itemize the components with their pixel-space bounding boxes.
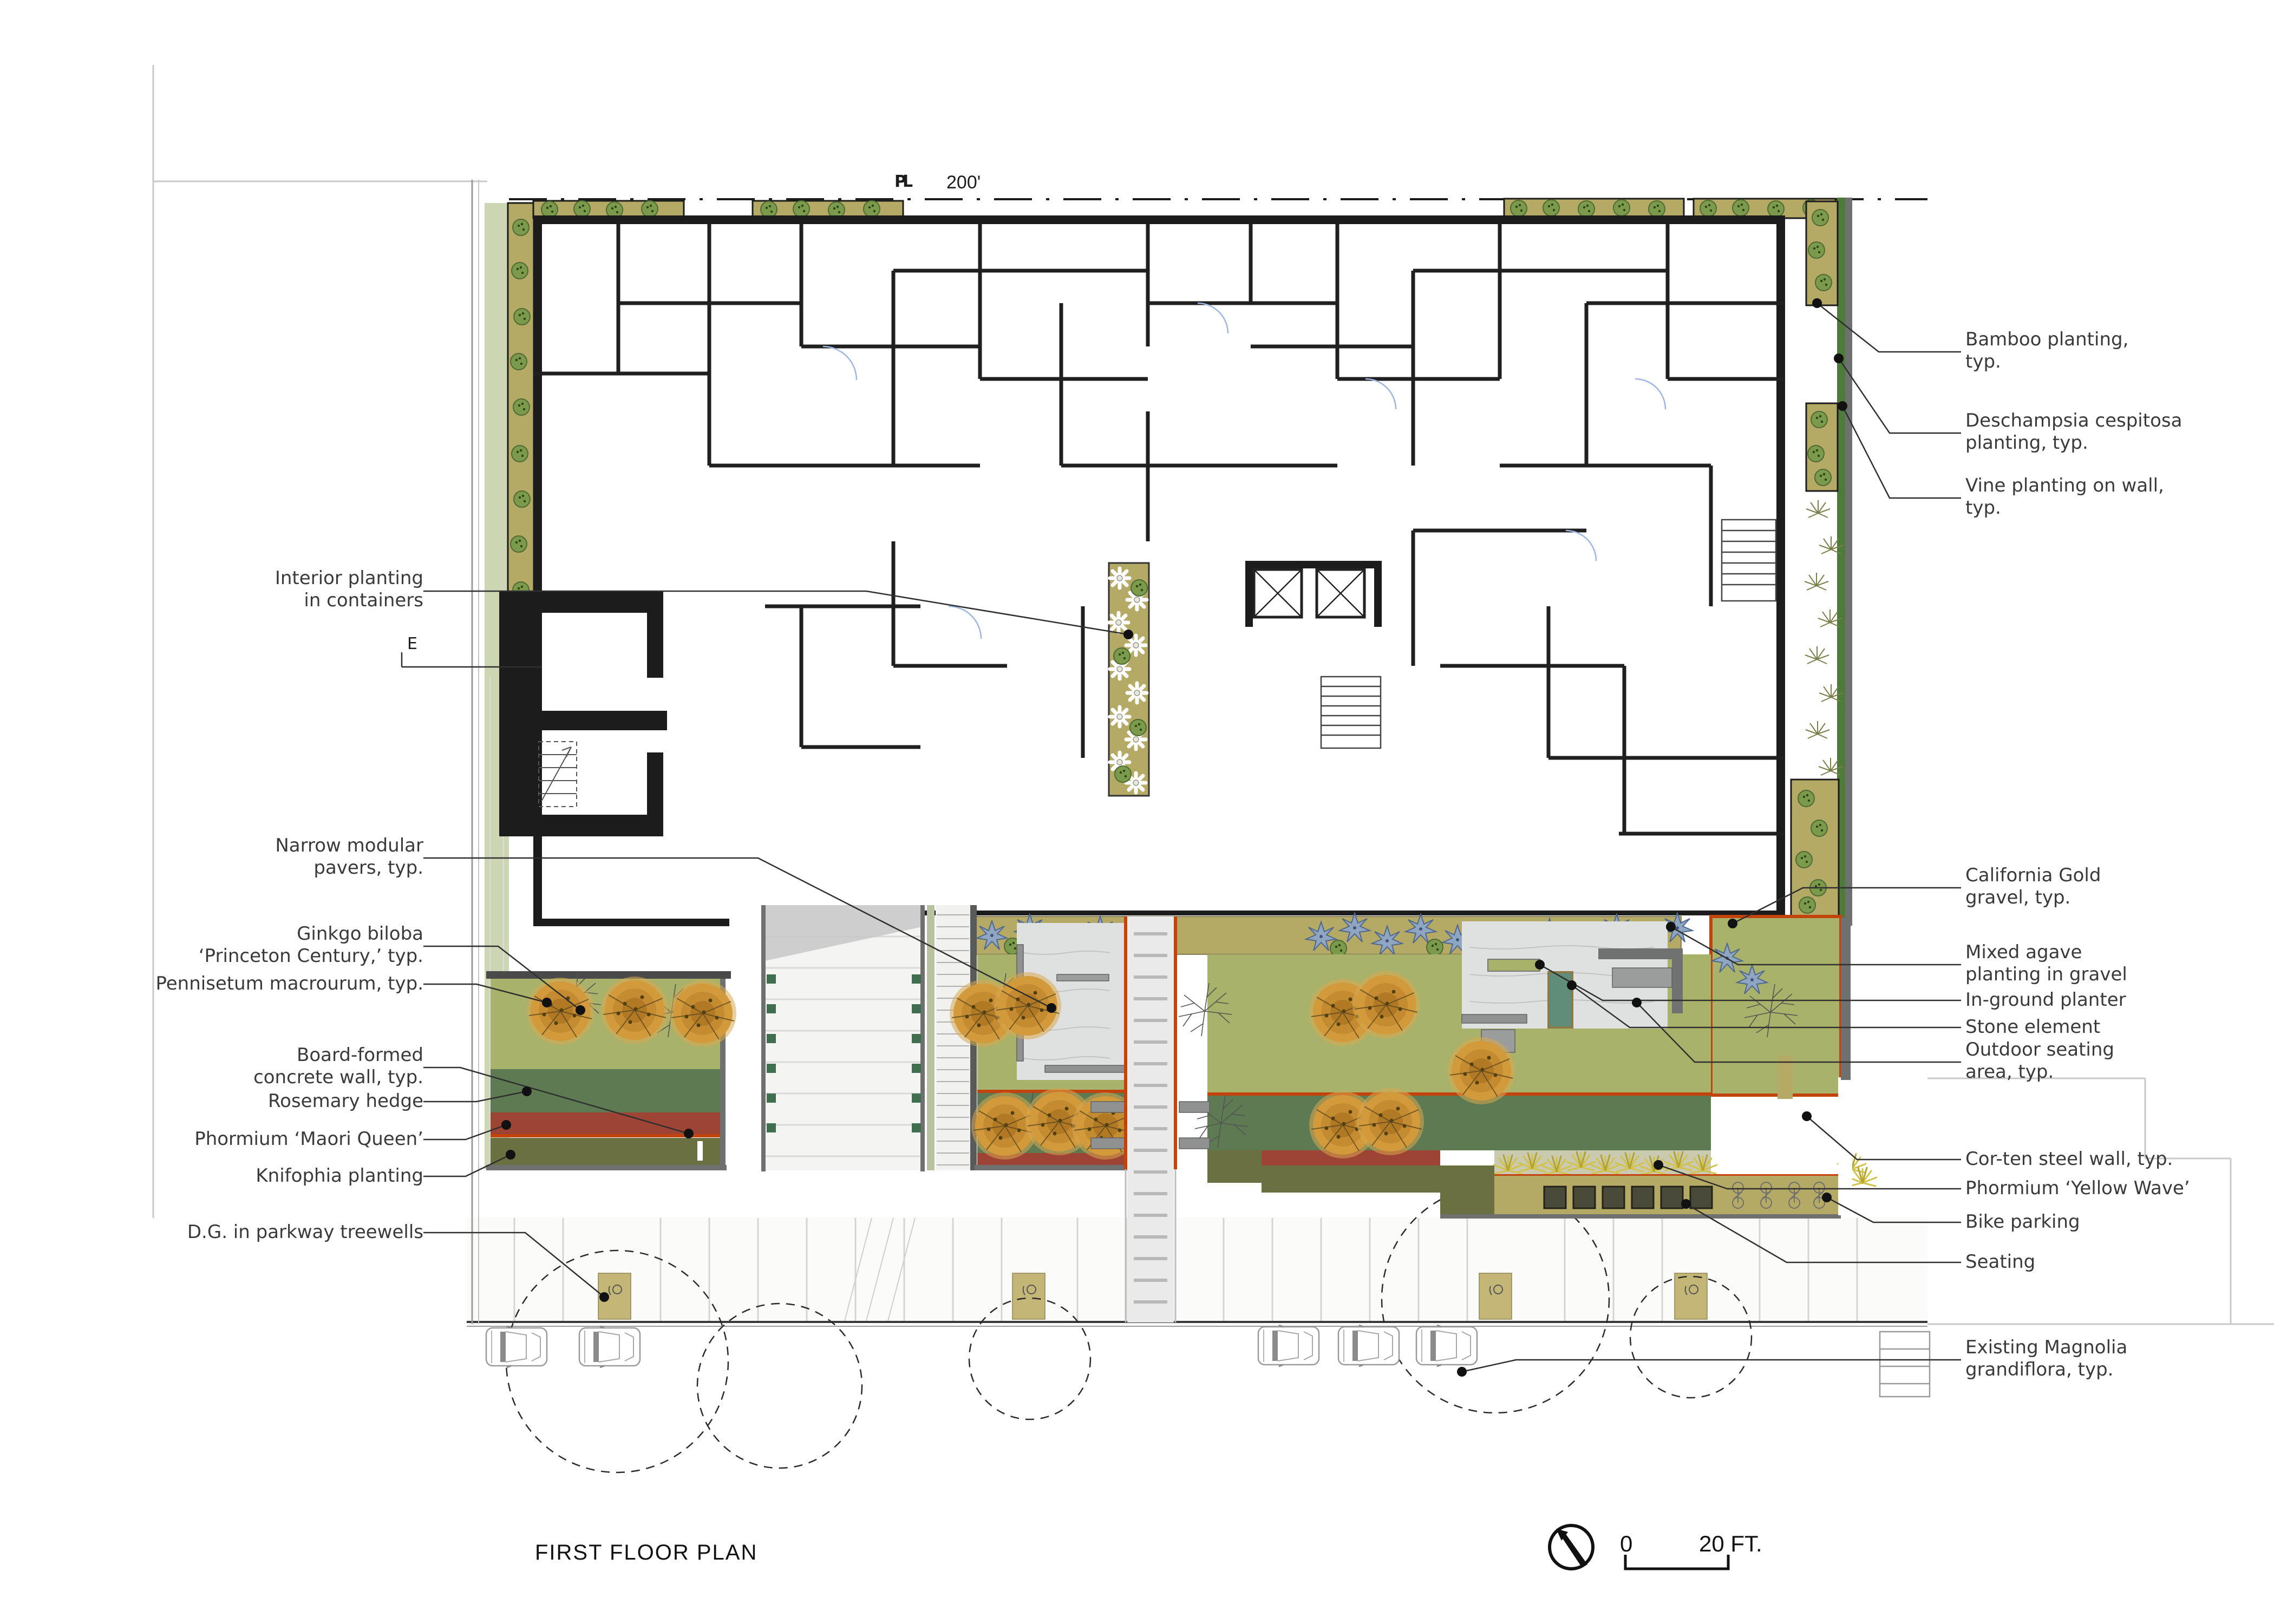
property-line-dimension: 200' (946, 172, 981, 193)
label-narrow-modular-pavers: Narrow modular pavers, typ. (120, 835, 423, 880)
label-stone-element: Stone element (1965, 1016, 2274, 1038)
label-in-ground-planter: In-ground planter (1965, 989, 2274, 1011)
floor-plan-drawing (0, 0, 2274, 1624)
label-bike-parking: Bike parking (1965, 1211, 2274, 1233)
parked-cars (486, 1325, 1477, 1367)
label-existing-magnolia: Existing Magnolia grandiflora, typ. (1965, 1337, 2274, 1381)
label-vine-planting: Vine planting on wall, typ. (1965, 475, 2274, 520)
label-seating: Seating (1965, 1251, 2274, 1273)
label-california-gold-gravel: California Gold gravel, typ. (1965, 865, 2274, 909)
elevators (1245, 561, 1382, 627)
service-core (499, 591, 667, 836)
label-phormium-yellow-wave: Phormium ‘Yellow Wave’ (1965, 1177, 2274, 1200)
label-pennisetum: Pennisetum macrourum, typ. (120, 973, 423, 995)
scale-zero-label: 0 (1620, 1531, 1632, 1557)
label-rosemary-hedge: Rosemary hedge (120, 1090, 423, 1112)
label-outdoor-seating: Outdoor seating area, typ. (1965, 1039, 2274, 1084)
label-bamboo: Bamboo planting, typ. (1965, 329, 2274, 374)
entry-walk (761, 905, 977, 1171)
property-line-mark: PL (894, 172, 909, 191)
floor-plan-canvas (0, 0, 2274, 1624)
label-phormium-maori-queen: Phormium ‘Maori Queen’ (120, 1128, 423, 1150)
north-arrow-icon (1550, 1525, 1593, 1569)
drawing-title: FIRST FLOOR PLAN (535, 1541, 757, 1565)
label-cor-ten-wall: Cor-ten steel wall, typ. (1965, 1148, 2274, 1170)
left-garden (486, 973, 736, 1170)
label-board-formed-wall: Board-formed concrete wall, typ. (120, 1044, 423, 1089)
scale-end-label: 20 FT. (1699, 1531, 1762, 1557)
central-stair-walk (1126, 916, 1175, 1322)
label-interior-planting: Interior planting in containers (120, 567, 423, 612)
label-ginkgo-biloba: Ginkgo biloba ‘Princeton Century,’ typ. (120, 923, 423, 968)
mid-garden (950, 923, 1139, 1170)
interior-planting-strip (1109, 563, 1149, 796)
label-deschampsia: Deschampsia cespitosa planting, typ. (1965, 410, 2274, 455)
label-mixed-agave: Mixed agave planting in gravel (1965, 941, 2274, 986)
label-knifophia: Knifophia planting (120, 1165, 423, 1187)
label-dg-treewells: D.G. in parkway treewells (120, 1221, 423, 1243)
east-mark: E (407, 634, 417, 653)
